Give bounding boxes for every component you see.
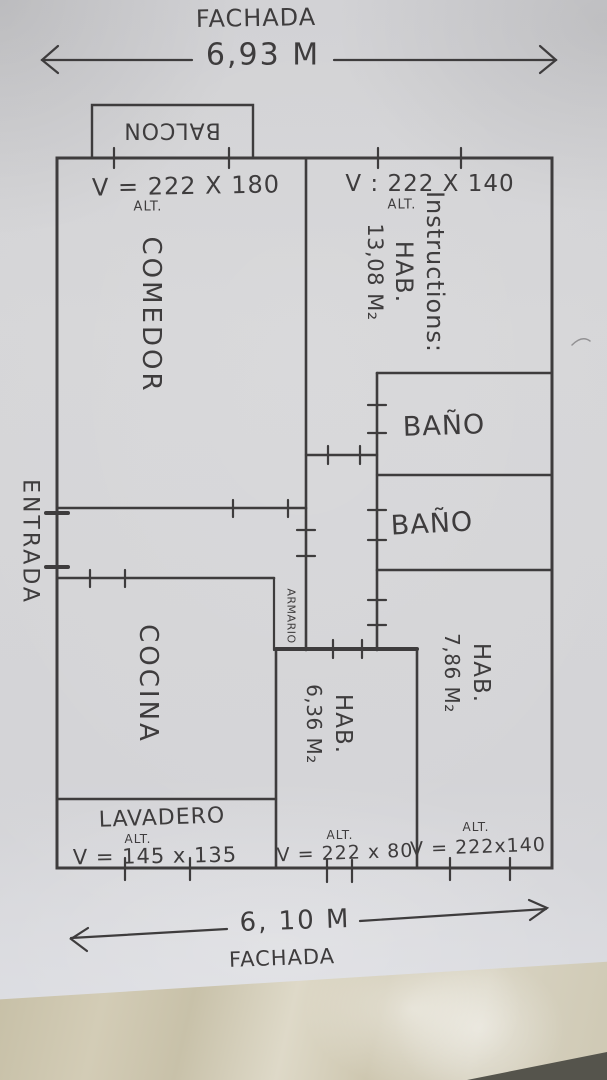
room-label-hab13: Instructions: HAB. 13,08 M₂: [360, 191, 450, 353]
room-area-hab7: 7,86 M₂: [439, 633, 465, 713]
room-label-lavadero: LAVADERO: [98, 803, 225, 832]
room-name-hab7: HAB.: [465, 633, 495, 713]
window-spec-comedor: V = 222 X 180: [92, 170, 281, 201]
room-label-hab7: HAB. 7,86 M₂: [439, 633, 495, 713]
room-label-cocina: COCINA: [133, 624, 163, 744]
room-label-bano2: BAÑO: [390, 506, 474, 541]
alt-label-hab6: ALT.: [327, 828, 354, 842]
room-label-armario: ARMARIO: [285, 588, 298, 643]
room-label-bano1: BAÑO: [402, 409, 485, 443]
room-name-hab13: HAB.: [387, 191, 418, 353]
room-area-hab6: 6,36 M₂: [301, 684, 327, 764]
room-label-comedor: COMEDOR: [136, 236, 166, 393]
stray-pencil-mark: [572, 339, 590, 345]
balcony-label: BALCON: [123, 118, 221, 143]
facade-label-bottom: FACHADA: [229, 944, 336, 972]
room-area-hab13: 13,08 M₂: [360, 191, 387, 353]
width-dimension-bottom: 6, 10 M: [239, 904, 351, 938]
door-ticks: [90, 405, 386, 658]
alt-label-hab7: ALT.: [463, 820, 490, 834]
alt-label-comedor: ALT.: [134, 200, 163, 215]
width-dimension-top: 6,93 M: [206, 38, 320, 73]
entrance-label: ENTRADA: [18, 479, 43, 605]
facade-label-top: FACHADA: [196, 3, 317, 33]
room-name-hab6: HAB.: [327, 684, 357, 764]
window-spec-lavadero: V = 145 x 135: [73, 843, 238, 870]
floor-plan-photo: FACHADA 6,93 M BALCON V = 222 X 180 ALT.…: [0, 0, 607, 1080]
room-label-hab6: HAB. 6,36 M₂: [301, 684, 357, 764]
